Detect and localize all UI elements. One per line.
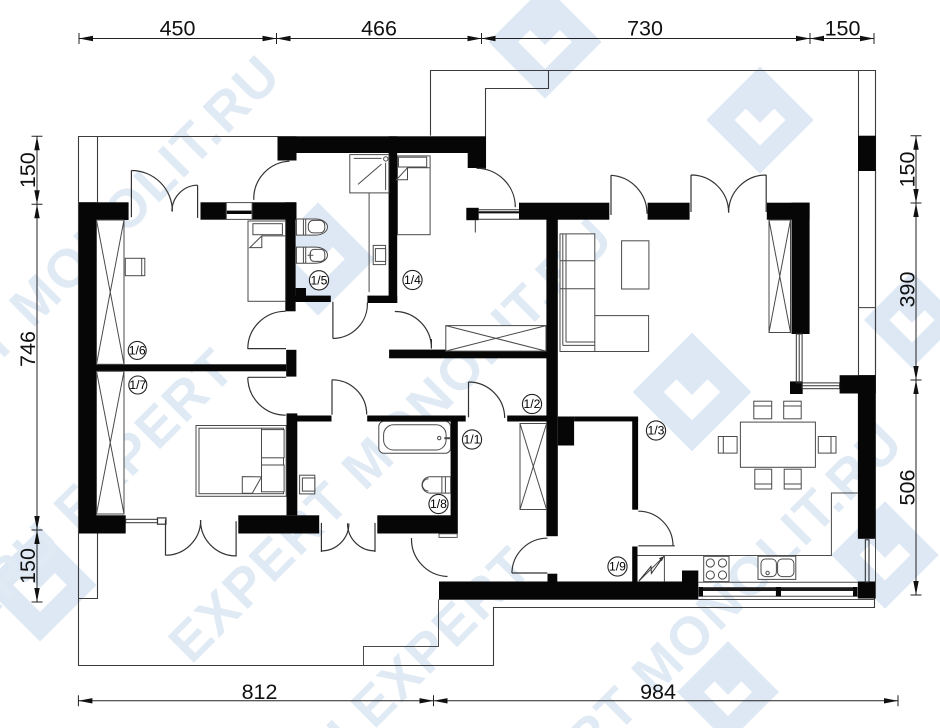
svg-text:1/1: 1/1 [464, 433, 481, 447]
svg-text:1/5: 1/5 [311, 274, 328, 288]
svg-text:746: 746 [16, 331, 40, 367]
svg-text:1/2: 1/2 [524, 397, 541, 411]
svg-text:812: 812 [242, 680, 278, 704]
svg-text:506: 506 [896, 470, 920, 506]
svg-text:1/4: 1/4 [404, 273, 421, 287]
svg-text:466: 466 [361, 17, 397, 41]
svg-text:1/3: 1/3 [648, 424, 665, 438]
svg-text:1/9: 1/9 [609, 560, 626, 574]
svg-text:1/8: 1/8 [430, 497, 447, 511]
svg-text:150: 150 [896, 152, 920, 188]
svg-text:150: 150 [16, 152, 40, 188]
svg-text:390: 390 [896, 272, 920, 308]
svg-text:730: 730 [627, 17, 663, 41]
svg-text:1/7: 1/7 [129, 378, 146, 392]
svg-text:150: 150 [16, 548, 40, 584]
svg-text:150: 150 [825, 17, 861, 41]
svg-text:1/6: 1/6 [129, 344, 146, 358]
svg-text:450: 450 [160, 17, 196, 41]
svg-text:984: 984 [640, 680, 676, 704]
